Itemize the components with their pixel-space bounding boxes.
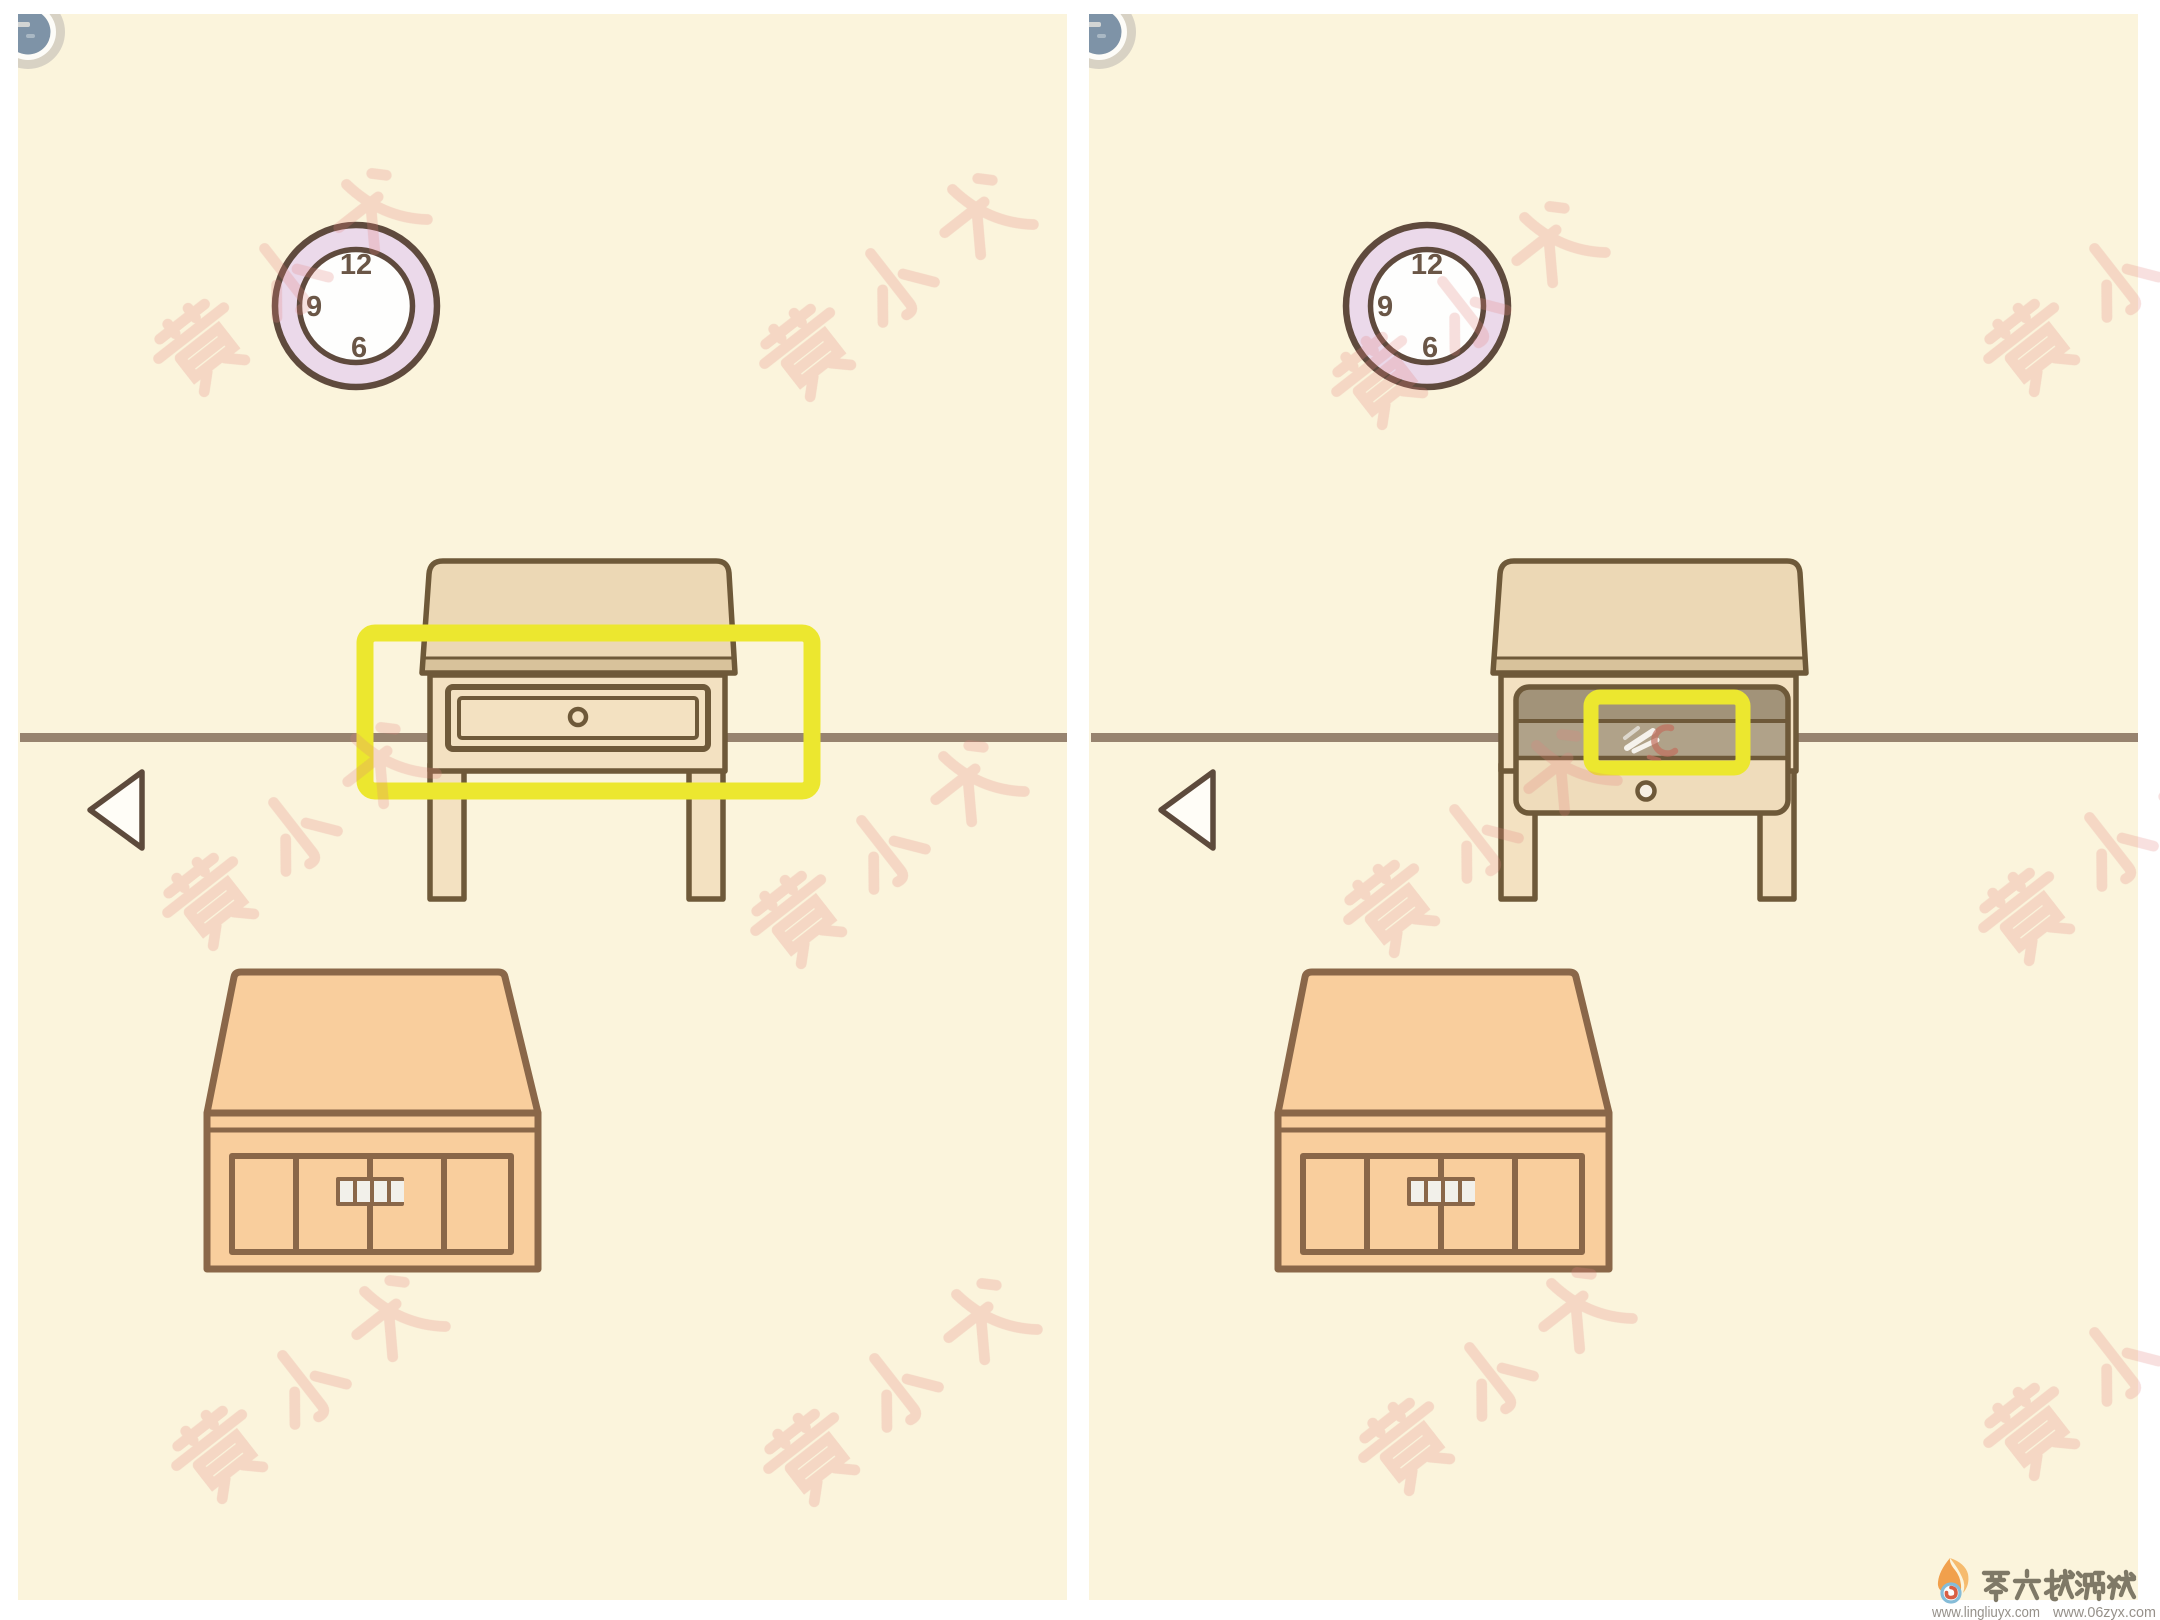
svg-text:www.06zyx.com: www.06zyx.com [2052, 1604, 2156, 1620]
svg-text:www.lingliuyx.com: www.lingliuyx.com [1931, 1604, 2040, 1620]
